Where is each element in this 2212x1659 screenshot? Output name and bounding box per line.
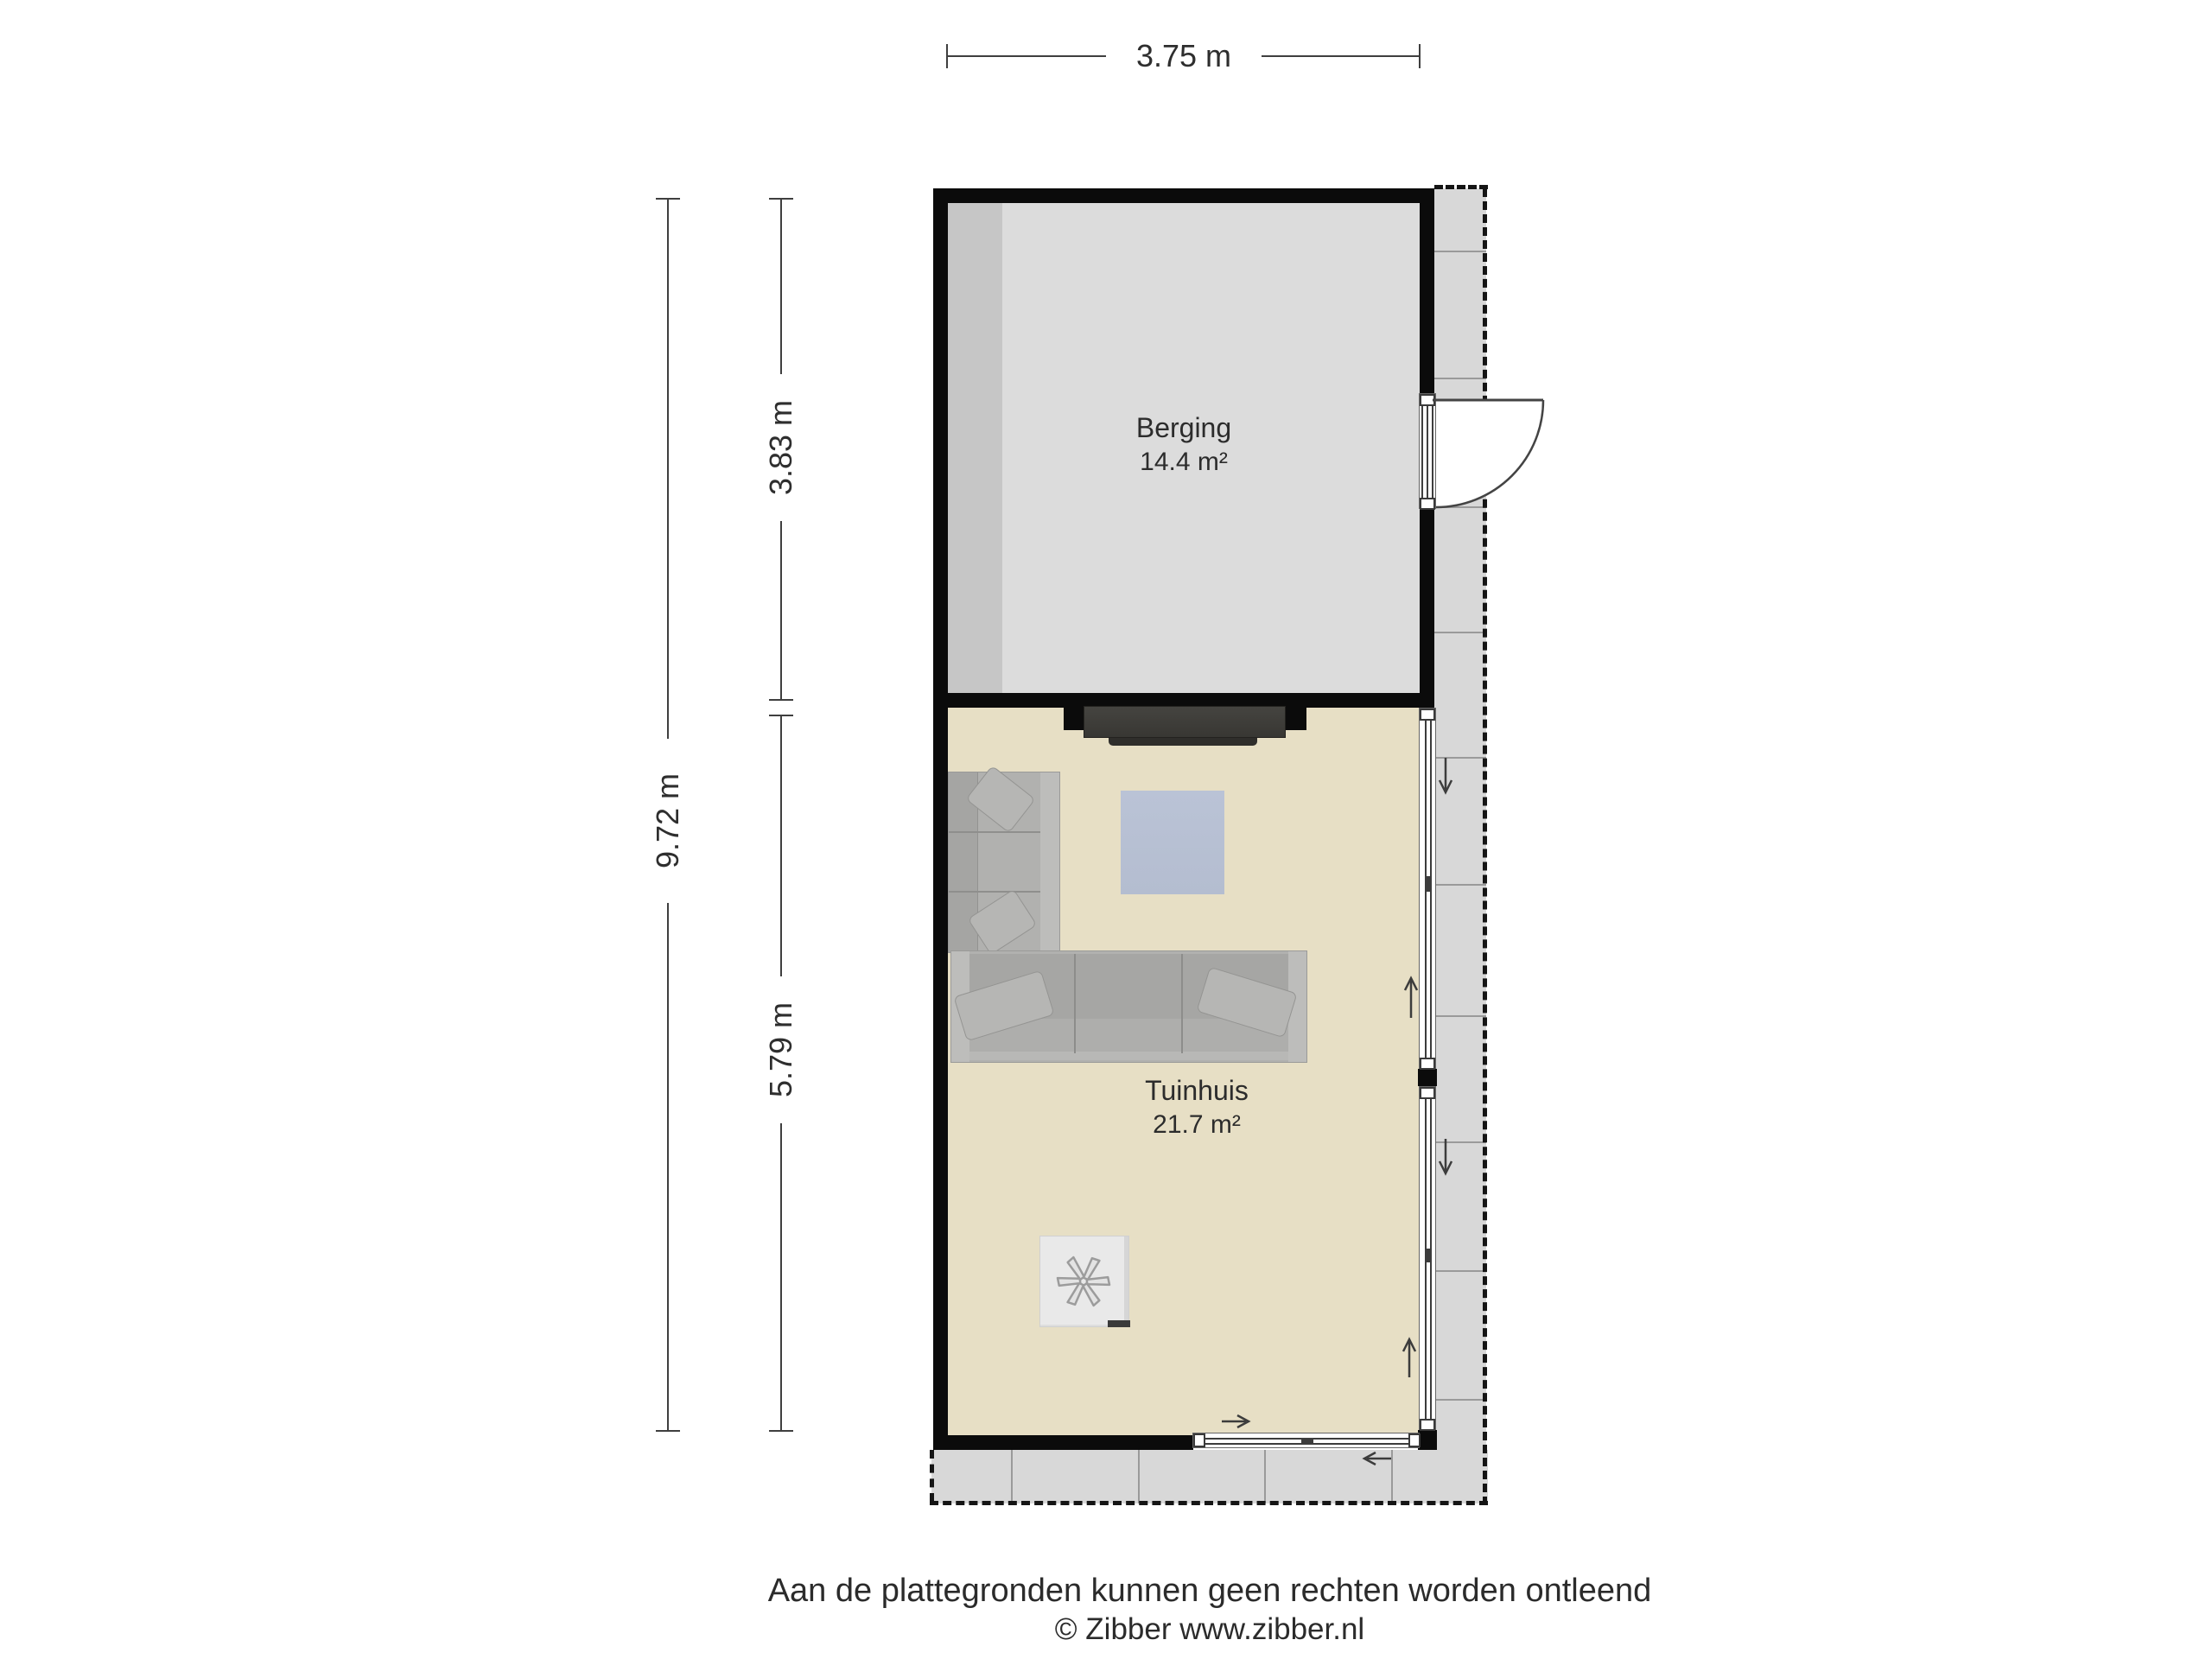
terrace-tile-joint <box>1434 506 1486 508</box>
dimension-label-berging-height: 3.83 m <box>760 374 802 521</box>
window-right-upper <box>1419 708 1436 1069</box>
boundary-dashed-right <box>1483 188 1487 1505</box>
wall-post-corner <box>1418 1430 1437 1450</box>
footer-disclaimer: Aan de plattegronden kunnen geen rechten… <box>605 1573 1815 1610</box>
dimension-tick <box>769 715 793 716</box>
tv-sideboard <box>1084 706 1286 738</box>
terrace-tile-joint <box>1434 251 1486 252</box>
room-name: Berging <box>1136 410 1231 445</box>
window-right-lower <box>1419 1086 1436 1430</box>
wall-stub-left <box>1064 708 1084 730</box>
terrace-tile-joint <box>1434 1399 1486 1401</box>
dimension-tick <box>1419 44 1421 68</box>
boundary-dashed-top <box>1434 185 1488 189</box>
dimension-label-width: 3.75 m <box>1106 35 1262 78</box>
sofa-corner <box>948 772 1060 953</box>
sofa-main <box>950 950 1307 1063</box>
room-area: 21.7 m² <box>1153 1108 1241 1142</box>
room-label-tuinhuis: Tuinhuis 21.7 m² <box>1093 1073 1300 1142</box>
floor-plan: 3.75 m 9.72 m 3.83 m 5.79 m Berging 14.4… <box>0 0 2212 1659</box>
stove <box>1039 1236 1129 1327</box>
dimension-tick <box>946 44 948 68</box>
dimension-tick <box>656 198 680 200</box>
stove-flue-base <box>1108 1320 1130 1327</box>
terrace-tile-joint <box>1434 757 1486 759</box>
rug <box>1121 791 1224 894</box>
terrace-tile-joint <box>1434 632 1486 633</box>
terrace-tile-joint <box>1011 1450 1013 1503</box>
boundary-dashed-bottom <box>930 1501 1488 1505</box>
terrace-right-strip <box>1434 188 1486 1503</box>
tv-sideboard-front <box>1109 738 1257 746</box>
footer-copyright: © Zibber www.zibber.nl <box>605 1612 1815 1647</box>
boundary-dashed-left-stub <box>930 1450 934 1502</box>
dimension-tick <box>769 1430 793 1432</box>
wall-stub-right <box>1286 708 1306 730</box>
room-area: 14.4 m² <box>1140 445 1228 480</box>
wall-post-mid <box>1418 1069 1437 1086</box>
terrace-tile-joint <box>1434 1270 1486 1272</box>
terrace-bottom-strip <box>931 1450 1488 1503</box>
terrace-tile-joint <box>1434 378 1486 379</box>
stove-fan-icon <box>1056 1254 1111 1309</box>
terrace-tile-joint <box>1434 1015 1486 1017</box>
wall-top <box>933 188 1434 203</box>
terrace-tile-joint <box>1138 1450 1140 1503</box>
door-berging <box>1419 393 1436 509</box>
window-bottom-slider <box>1192 1433 1420 1448</box>
wall-bottom <box>933 1435 1193 1450</box>
dimension-tick <box>769 198 793 200</box>
berging-floor-shadow <box>948 203 1002 693</box>
dimension-label-tuinhuis-height: 5.79 m <box>760 976 802 1123</box>
room-label-berging: Berging 14.4 m² <box>1080 410 1287 480</box>
terrace-tile-joint <box>1264 1450 1266 1503</box>
terrace-tile-joint <box>1434 884 1486 886</box>
dimension-tick <box>656 1430 680 1432</box>
terrace-tile-joint <box>1434 1141 1486 1143</box>
wall-left <box>933 188 948 1450</box>
room-name: Tuinhuis <box>1145 1073 1249 1108</box>
dimension-label-total-height: 9.72 m <box>647 739 689 903</box>
terrace-tile-joint <box>1391 1450 1393 1503</box>
dimension-tick <box>769 699 793 701</box>
